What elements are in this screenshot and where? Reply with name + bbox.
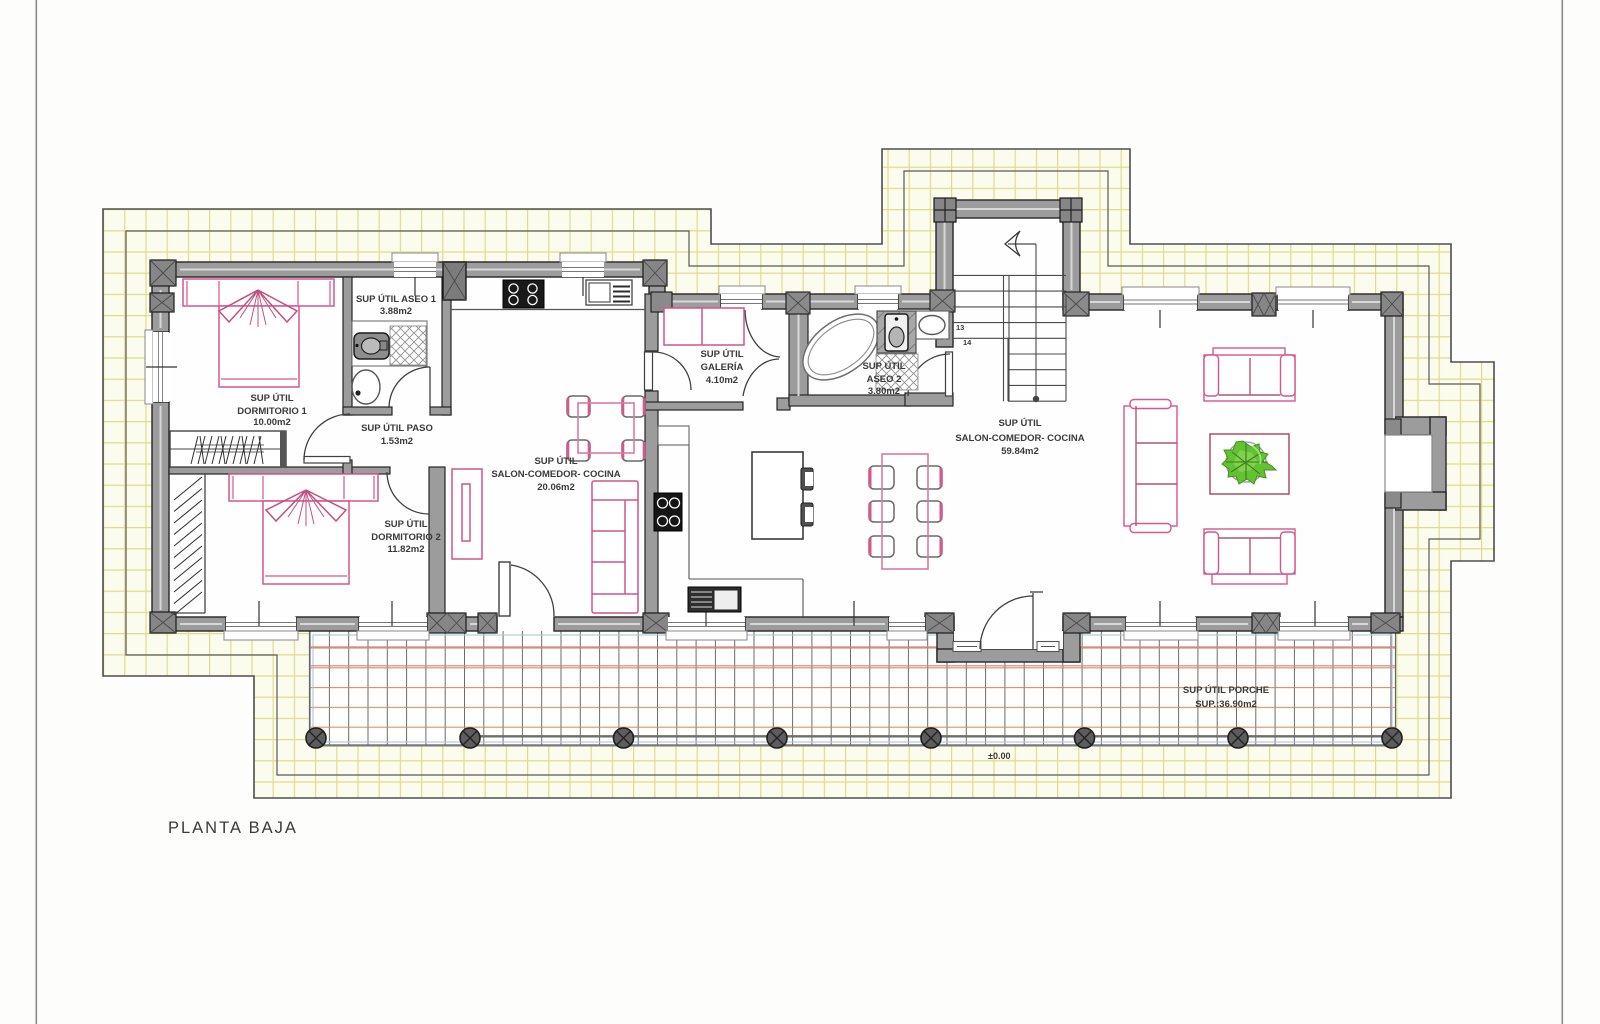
svg-text:GALERÍA: GALERÍA — [701, 362, 744, 373]
svg-text:14: 14 — [963, 338, 972, 347]
svg-text:4.10m2: 4.10m2 — [706, 375, 738, 386]
svg-text:SUP ÚTIL: SUP ÚTIL — [998, 417, 1041, 429]
svg-text:20.06m2: 20.06m2 — [537, 482, 575, 493]
svg-text:SALON-COMEDOR- COCINA: SALON-COMEDOR- COCINA — [491, 469, 620, 480]
svg-text:1.53m2: 1.53m2 — [381, 436, 413, 447]
svg-text:3.88m2: 3.88m2 — [380, 306, 412, 317]
svg-text:59.84m2: 59.84m2 — [1001, 446, 1039, 457]
svg-text:PLANTA BAJA: PLANTA BAJA — [168, 819, 298, 837]
svg-text:3.80m2: 3.80m2 — [868, 386, 900, 397]
svg-text:SUP ÚTIL: SUP ÚTIL — [534, 455, 577, 467]
svg-text:SALON-COMEDOR- COCINA: SALON-COMEDOR- COCINA — [955, 433, 1084, 444]
svg-text:±0.00: ±0.00 — [988, 751, 1010, 761]
svg-text:SUP ÚTIL: SUP ÚTIL — [384, 518, 427, 530]
svg-text:SUP.:36.90m2: SUP.:36.90m2 — [1195, 699, 1257, 710]
svg-text:SUP ÚTIL PORCHE: SUP ÚTIL PORCHE — [1183, 684, 1269, 696]
svg-text:SUP ÚTIL: SUP ÚTIL — [862, 360, 905, 372]
svg-text:SUP ÚTIL: SUP ÚTIL — [250, 392, 293, 404]
svg-text:ASEO 2: ASEO 2 — [867, 374, 902, 385]
svg-text:DORMITORIO 1: DORMITORIO 1 — [237, 406, 307, 417]
svg-text:SUP ÚTIL PASO: SUP ÚTIL PASO — [361, 422, 433, 434]
svg-text:11.82m2: 11.82m2 — [388, 544, 425, 555]
svg-text:SUP ÚTIL: SUP ÚTIL — [700, 348, 743, 360]
svg-text:13: 13 — [956, 323, 964, 332]
svg-text:DORMITORIO 2: DORMITORIO 2 — [371, 532, 441, 543]
svg-text:10.00m2: 10.00m2 — [253, 417, 291, 428]
svg-text:SUP ÚTIL ASEO 1: SUP ÚTIL ASEO 1 — [356, 293, 437, 305]
